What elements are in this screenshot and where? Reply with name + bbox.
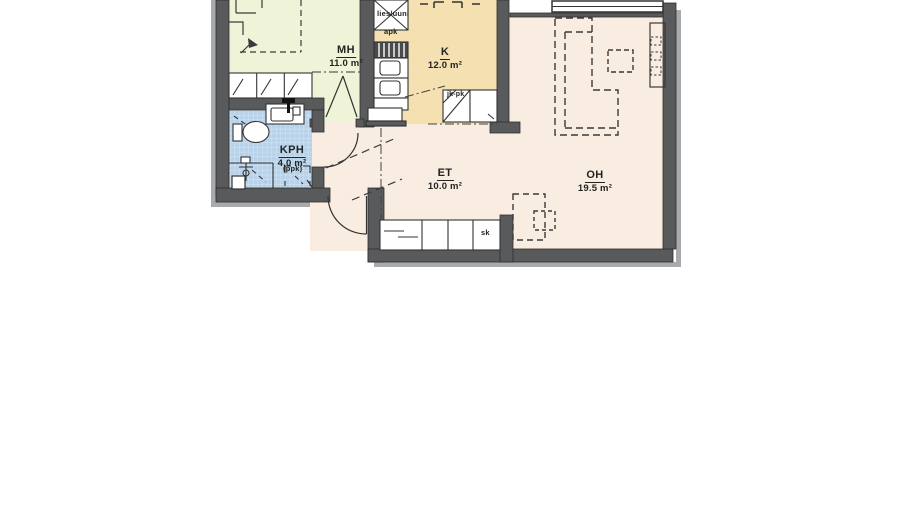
room-area: 19.5 m² (578, 184, 612, 195)
mh-wardrobes (229, 73, 312, 98)
toilet-tank (233, 124, 242, 141)
stove-oven-label: lies/uuni (377, 9, 409, 18)
cleaning-closet-label: sk (481, 228, 490, 237)
room-name: MH (336, 44, 356, 58)
dishwasher-label: apk (384, 27, 398, 36)
room-name: ET (437, 167, 454, 181)
room-floors (229, 0, 665, 251)
freezer-cabinet (470, 90, 497, 122)
washer-reservation-label: (ppk) (283, 164, 302, 173)
wall-niche (232, 176, 245, 189)
room-area: 11.0 m² (329, 59, 363, 70)
floor-plan-drawing (0, 0, 920, 517)
floor-plan-canvas: MH 11.0 m² K 12.0 m² KPH 4.0 m² ET 10.0 … (0, 0, 920, 517)
faucet (282, 98, 295, 103)
room-area: 12.0 m² (428, 61, 462, 72)
counter-end-cabinet (368, 108, 402, 121)
room-name: K (440, 46, 450, 60)
room-name: OH (585, 169, 604, 183)
room-label-et: ET 10.0 m² (428, 163, 462, 193)
fridge-freezer-label: jk-pk (447, 91, 464, 98)
room-name: KPH (279, 144, 305, 158)
room-label-k: K 12.0 m² (428, 42, 462, 72)
toilet-bowl (243, 122, 269, 143)
window (552, 1, 663, 12)
room-area: 10.0 m² (428, 182, 462, 193)
floor-oh (497, 16, 665, 250)
room-label-oh: OH 19.5 m² (578, 165, 612, 195)
room-label-mh: MH 11.0 m² (329, 40, 363, 70)
